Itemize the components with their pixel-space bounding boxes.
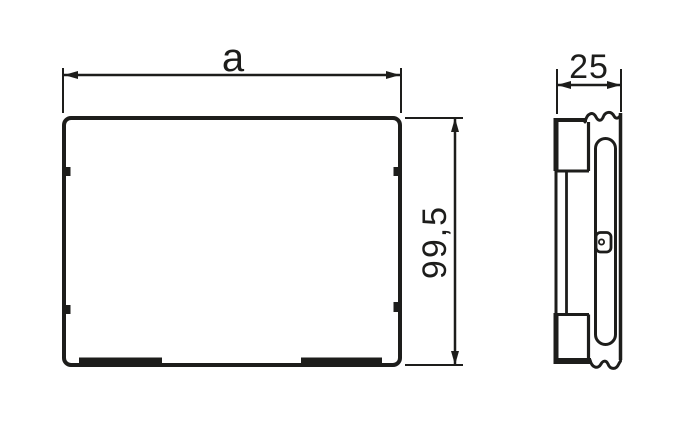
width-arrow-left <box>64 71 78 79</box>
mounting-tab-right <box>301 358 382 366</box>
snap-nub-right-bottom <box>394 302 401 312</box>
front-view <box>63 68 463 366</box>
depth-arrow-right <box>607 81 621 89</box>
height-arrow-bottom <box>451 351 459 365</box>
snap-nub-left-top <box>64 167 71 176</box>
height-dimension-label: 99,5 <box>416 205 454 279</box>
break-line-top <box>585 112 621 122</box>
break-line-bottom <box>590 360 621 368</box>
dimension-drawing: a 25 99,5 <box>0 0 680 425</box>
height-arrow-top <box>451 118 459 132</box>
width-dimension-label: a <box>222 36 245 80</box>
technical-drawing-page: a 25 99,5 <box>0 0 680 425</box>
snap-nub-right-top <box>394 167 401 176</box>
width-arrow-right <box>386 71 400 79</box>
cover-plate-outline <box>64 118 400 365</box>
clip-screw-icon <box>599 239 604 244</box>
side-view <box>554 69 622 368</box>
mounting-tab-left <box>79 358 162 366</box>
snap-nub-left-bottom <box>64 305 71 314</box>
depth-dimension-label: 25 <box>569 48 609 86</box>
